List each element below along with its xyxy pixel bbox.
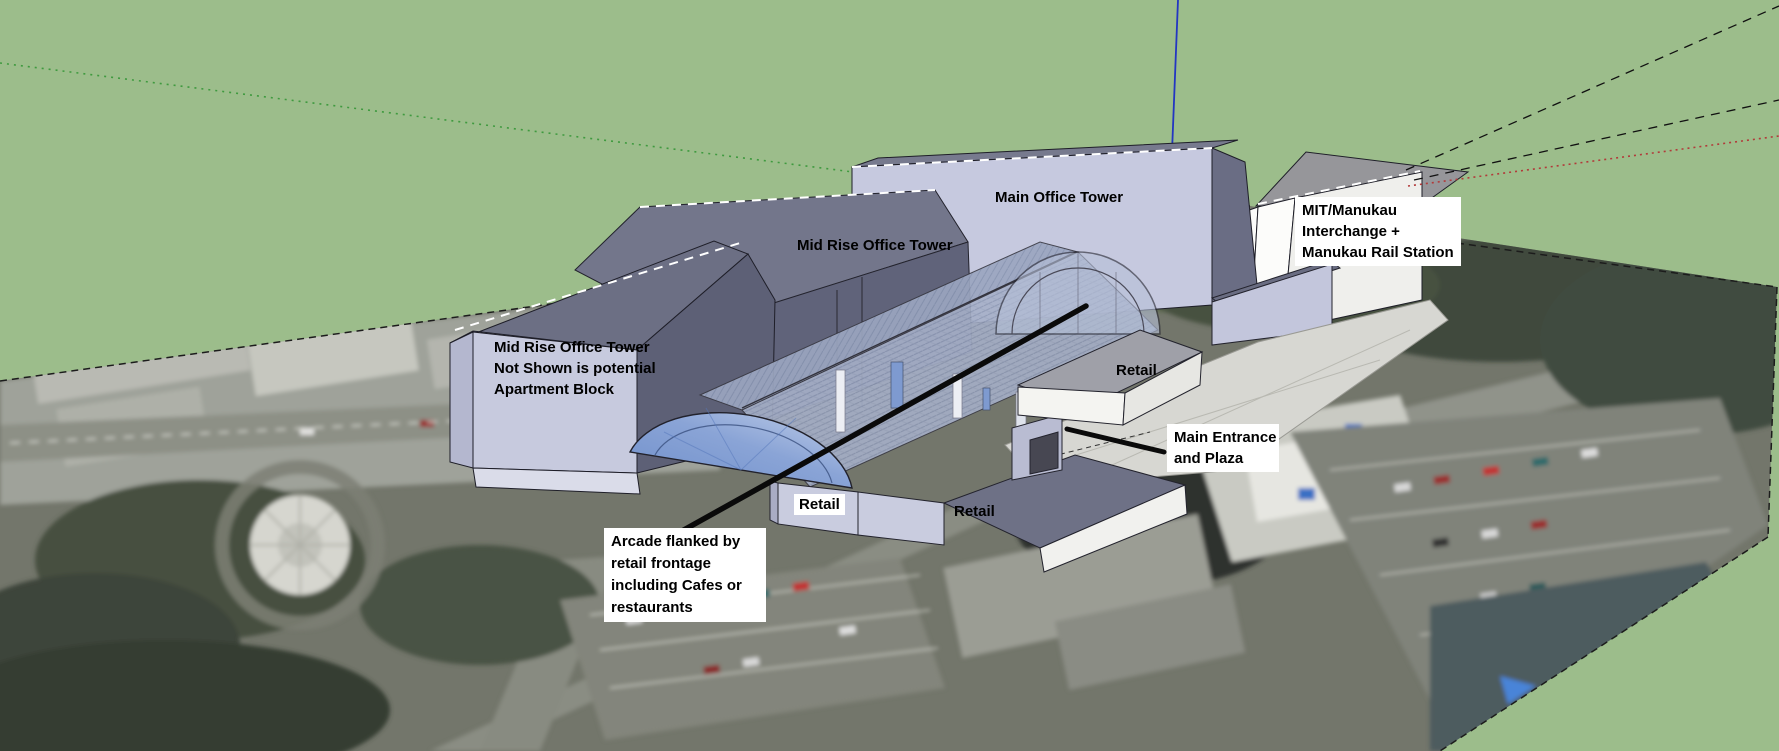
- sketchup-viewport[interactable]: Main Office Tower Mid Rise Office Tower …: [0, 0, 1779, 751]
- scene-3d: [0, 0, 1779, 751]
